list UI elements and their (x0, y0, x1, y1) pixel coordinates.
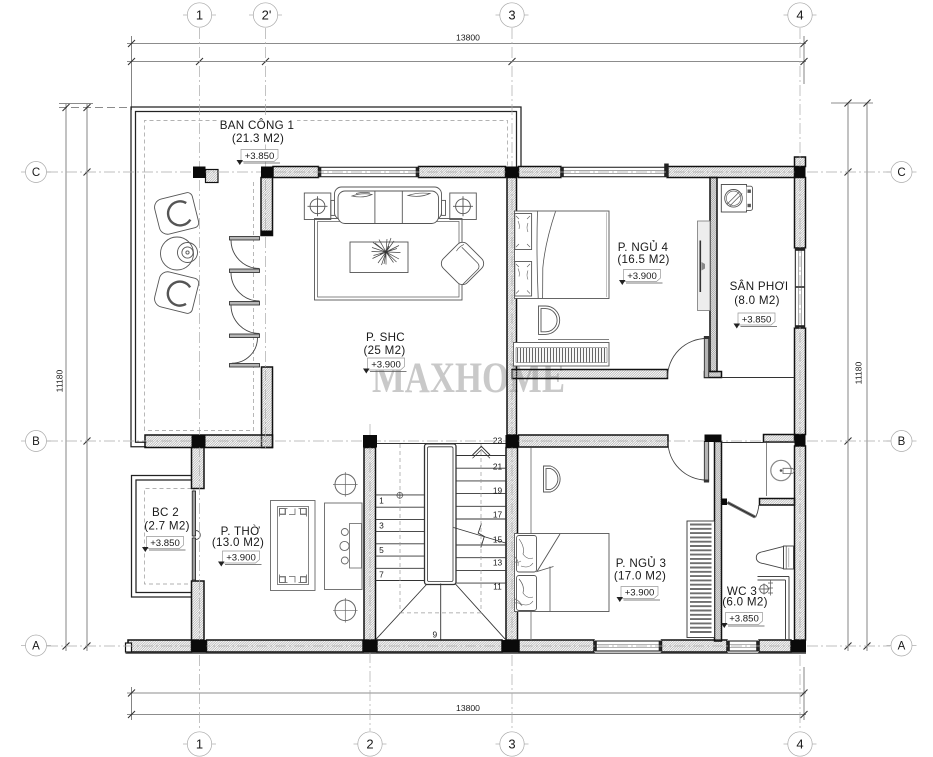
svg-text:11: 11 (493, 582, 502, 592)
svg-text:P. NGỦ 4: P. NGỦ 4 (618, 241, 669, 254)
svg-text:4: 4 (796, 8, 803, 23)
svg-text:+3.900: +3.900 (627, 271, 657, 282)
svg-text:(8.0 M2): (8.0 M2) (734, 294, 780, 307)
svg-text:9: 9 (432, 630, 437, 640)
svg-text:C: C (32, 167, 40, 179)
svg-text:SÂN PHƠI: SÂN PHƠI (730, 280, 789, 293)
svg-text:+3.850: +3.850 (245, 151, 275, 162)
svg-text:13: 13 (493, 558, 503, 568)
svg-text:15: 15 (493, 535, 503, 545)
svg-text:3: 3 (379, 520, 384, 530)
svg-text:5: 5 (379, 545, 384, 555)
svg-text:3: 3 (508, 737, 515, 752)
svg-text:+3.900: +3.900 (371, 359, 401, 370)
svg-text:+3.850: +3.850 (150, 538, 180, 549)
svg-text:3: 3 (508, 8, 515, 23)
svg-text:P. NGỦ 3: P. NGỦ 3 (616, 557, 667, 570)
svg-text:13800: 13800 (456, 703, 480, 713)
svg-text:(21.3 M2): (21.3 M2) (232, 132, 284, 145)
svg-text:C: C (897, 167, 905, 179)
svg-text:B: B (898, 436, 906, 448)
svg-text:21: 21 (493, 462, 503, 472)
svg-text:A: A (32, 641, 40, 653)
svg-text:(13.0 M2): (13.0 M2) (212, 536, 264, 549)
svg-text:(25 M2): (25 M2) (363, 344, 405, 357)
svg-text:+3.850: +3.850 (742, 314, 772, 325)
svg-text:13800: 13800 (456, 33, 480, 43)
svg-text:1: 1 (379, 496, 384, 506)
svg-text:P. SHC: P. SHC (366, 331, 405, 344)
svg-text:2': 2' (262, 8, 272, 23)
svg-text:(6.0 M2): (6.0 M2) (722, 596, 768, 609)
svg-text:+3.900: +3.900 (226, 552, 256, 563)
svg-text:(17.0 M2): (17.0 M2) (614, 570, 666, 583)
svg-text:4: 4 (796, 737, 803, 752)
svg-text:2: 2 (366, 737, 373, 752)
svg-text:19: 19 (493, 486, 503, 496)
svg-text:17: 17 (493, 510, 503, 520)
svg-text:B: B (32, 436, 40, 448)
svg-text:11180: 11180 (854, 361, 864, 384)
svg-text:(2.7 M2): (2.7 M2) (144, 520, 190, 533)
svg-text:A: A (898, 641, 906, 653)
svg-text:BC 2: BC 2 (152, 506, 179, 519)
svg-text:1: 1 (196, 737, 203, 752)
svg-text:+3.900: +3.900 (625, 587, 655, 598)
svg-text:11180: 11180 (55, 369, 65, 392)
svg-text:(16.5 M2): (16.5 M2) (617, 253, 669, 266)
svg-text:BAN CÔNG 1: BAN CÔNG 1 (220, 119, 295, 132)
svg-text:1: 1 (196, 8, 203, 23)
svg-text:+3.850: +3.850 (729, 613, 759, 624)
svg-text:7: 7 (379, 569, 384, 579)
